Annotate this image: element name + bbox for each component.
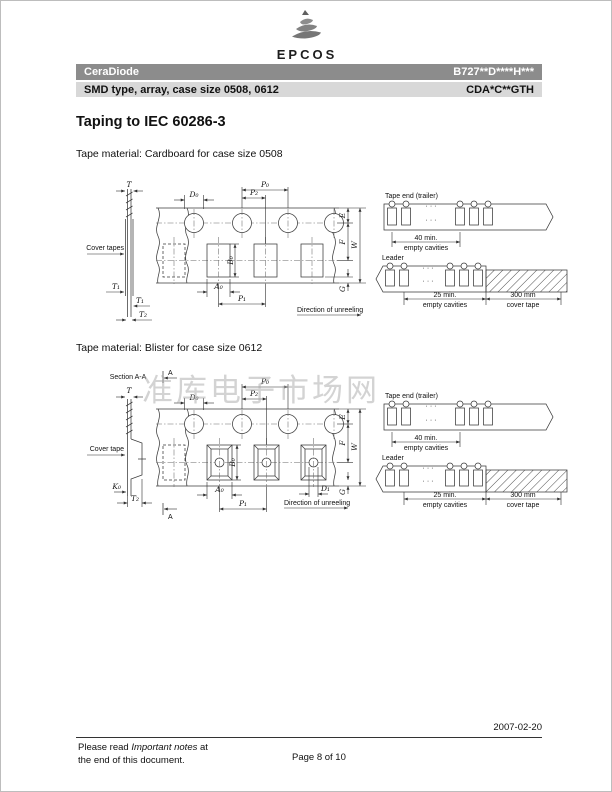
revision-date: 2007-02-20 [76, 722, 542, 733]
dim-B0: B₀ [226, 256, 235, 266]
leader-empty-cavities: empty cavities [423, 502, 468, 509]
trailer-title: Tape end (trailer) [385, 193, 438, 200]
dim-B0: B₀ [228, 458, 237, 468]
dim-D0: D₀ [188, 393, 198, 402]
epcos-logo: EPCOS [267, 9, 347, 62]
cover-tape-dim-label: cover tape [507, 302, 540, 309]
header-bar-type: SMD type, array, case size 0508, 0612 CD… [76, 82, 542, 97]
cavity-dots: · · · [426, 203, 437, 210]
trailer-qty: 40 min. [415, 235, 438, 242]
dim-G: G [338, 286, 347, 292]
section-aa-label: Section A-A [110, 374, 147, 381]
trailer-diagram: Tape end (trailer) · · · · · · 40 min. e… [384, 193, 553, 252]
dim-A0: A₀ [214, 485, 223, 494]
cavity-dots: · · · [426, 217, 437, 224]
trailer-empty-cavities: empty cavities [404, 445, 449, 452]
dim-D0: D₀ [188, 190, 198, 199]
page-title: Taping to IEC 60286-3 [76, 114, 226, 130]
leader-qty: 25 min. [434, 292, 457, 299]
dim-A0: A₀ [213, 282, 222, 291]
cavity-dots: · · · [426, 417, 437, 424]
dim-E: E [338, 414, 347, 421]
header-bar-product: CeraDiode B727**D****H*** [76, 64, 542, 80]
cover-length: 300 mm [510, 492, 535, 499]
leader-qty: 25 min. [434, 492, 457, 499]
dim-F: F [338, 239, 347, 246]
trailer-diagram: Tape end (trailer) · · · · · · 40 min. e… [384, 393, 553, 452]
dim-P2: P₂ [249, 188, 258, 197]
dim-W: W [350, 442, 359, 451]
tape-side-view: T Cover tapes T₁ T₁ T₂ [86, 180, 152, 320]
caption-cardboard: Tape material: Cardboard for case size 0… [76, 148, 283, 160]
dim-G: G [338, 489, 347, 495]
part-number: B727**D****H*** [453, 66, 534, 78]
dim-P0: P₀ [260, 377, 269, 386]
footer-note: Please read Important notes at the end o… [78, 742, 208, 767]
cover-length: 300 mm [510, 292, 535, 299]
cavity-dots: · · · [423, 465, 434, 472]
section-letter: A [168, 514, 173, 521]
dim-T: T [126, 386, 132, 395]
caption-blister: Tape material: Blister for case size 061… [76, 342, 262, 354]
epcos-logo-icon [289, 9, 325, 41]
footer-note-pre: Please read [78, 742, 131, 753]
dim-W: W [350, 240, 359, 249]
blister-side-view: T Cover tape K₀ T₂ [87, 386, 152, 507]
dim-T1-top: T₁ [112, 282, 120, 291]
dim-E: E [338, 212, 347, 219]
footer-rule [76, 737, 542, 738]
dim-P1: P₁ [237, 294, 246, 303]
dim-D1: D₁ [320, 484, 330, 493]
blister-top-view: D₀ P₀ P₂ B₀ A₀ P₁ [156, 377, 366, 512]
dim-P1: P₁ [238, 499, 247, 508]
diagram-cardboard-tape: T Cover tapes T₁ T₁ T₂ [76, 179, 569, 331]
trailer-qty: 40 min. [415, 435, 438, 442]
trailer-empty-cavities: empty cavities [404, 245, 449, 252]
direction-label: Direction of unreeling [284, 500, 350, 507]
dim-K0: K₀ [111, 482, 121, 491]
cavity-dots: · · · [423, 278, 434, 285]
direction-label: Direction of unreeling [297, 307, 363, 314]
leader-diagram: Leader · · · · · · 25 min. empty cavitie… [376, 255, 567, 309]
dim-P2: P₂ [249, 389, 258, 398]
type-description: SMD type, array, case size 0508, 0612 [84, 84, 279, 96]
cavity-dots: · · · [426, 403, 437, 410]
leader-title: Leader [382, 255, 404, 262]
tape-top-view: D₀ P₀ P₂ B₀ A₀ P₁ [156, 180, 366, 315]
cavity-dots: · · · [423, 265, 434, 272]
page-number: Page 8 of 10 [292, 752, 346, 763]
leader-diagram: Leader · · · · · · 25 min. empty cavitie… [376, 455, 567, 509]
footer-note-post: at [197, 742, 208, 753]
dim-T2: T₂ [139, 310, 147, 319]
footer-note-important: Important notes [131, 742, 197, 753]
footer-note-line2: the end of this document. [78, 755, 185, 766]
product-line: CeraDiode [84, 66, 139, 78]
leader-title: Leader [382, 455, 404, 462]
datasheet-page: EPCOS CeraDiode B727**D****H*** SMD type… [0, 0, 612, 792]
cavity-dots: · · · [423, 478, 434, 485]
cover-tape-dim-label: cover tape [507, 502, 540, 509]
cover-tape-label: Cover tape [90, 446, 124, 453]
dim-T1-bottom: T₁ [136, 296, 144, 305]
section-arrow-top: A [163, 370, 177, 383]
section-letter: A [168, 370, 173, 377]
ordering-code: CDA*C**GTH [466, 84, 534, 96]
dim-P0: P₀ [260, 180, 269, 189]
dim-F: F [338, 440, 347, 447]
section-arrow-bottom: A [163, 503, 177, 521]
diagram-blister-tape: Section A-A A A T Cover tape [76, 367, 569, 525]
leader-empty-cavities: empty cavities [423, 302, 468, 309]
trailer-title: Tape end (trailer) [385, 393, 438, 400]
logo-wordmark: EPCOS [267, 47, 347, 62]
dim-T: T [126, 180, 132, 189]
dim-T2: T₂ [131, 494, 139, 503]
cover-tapes-label: Cover tapes [86, 245, 124, 252]
